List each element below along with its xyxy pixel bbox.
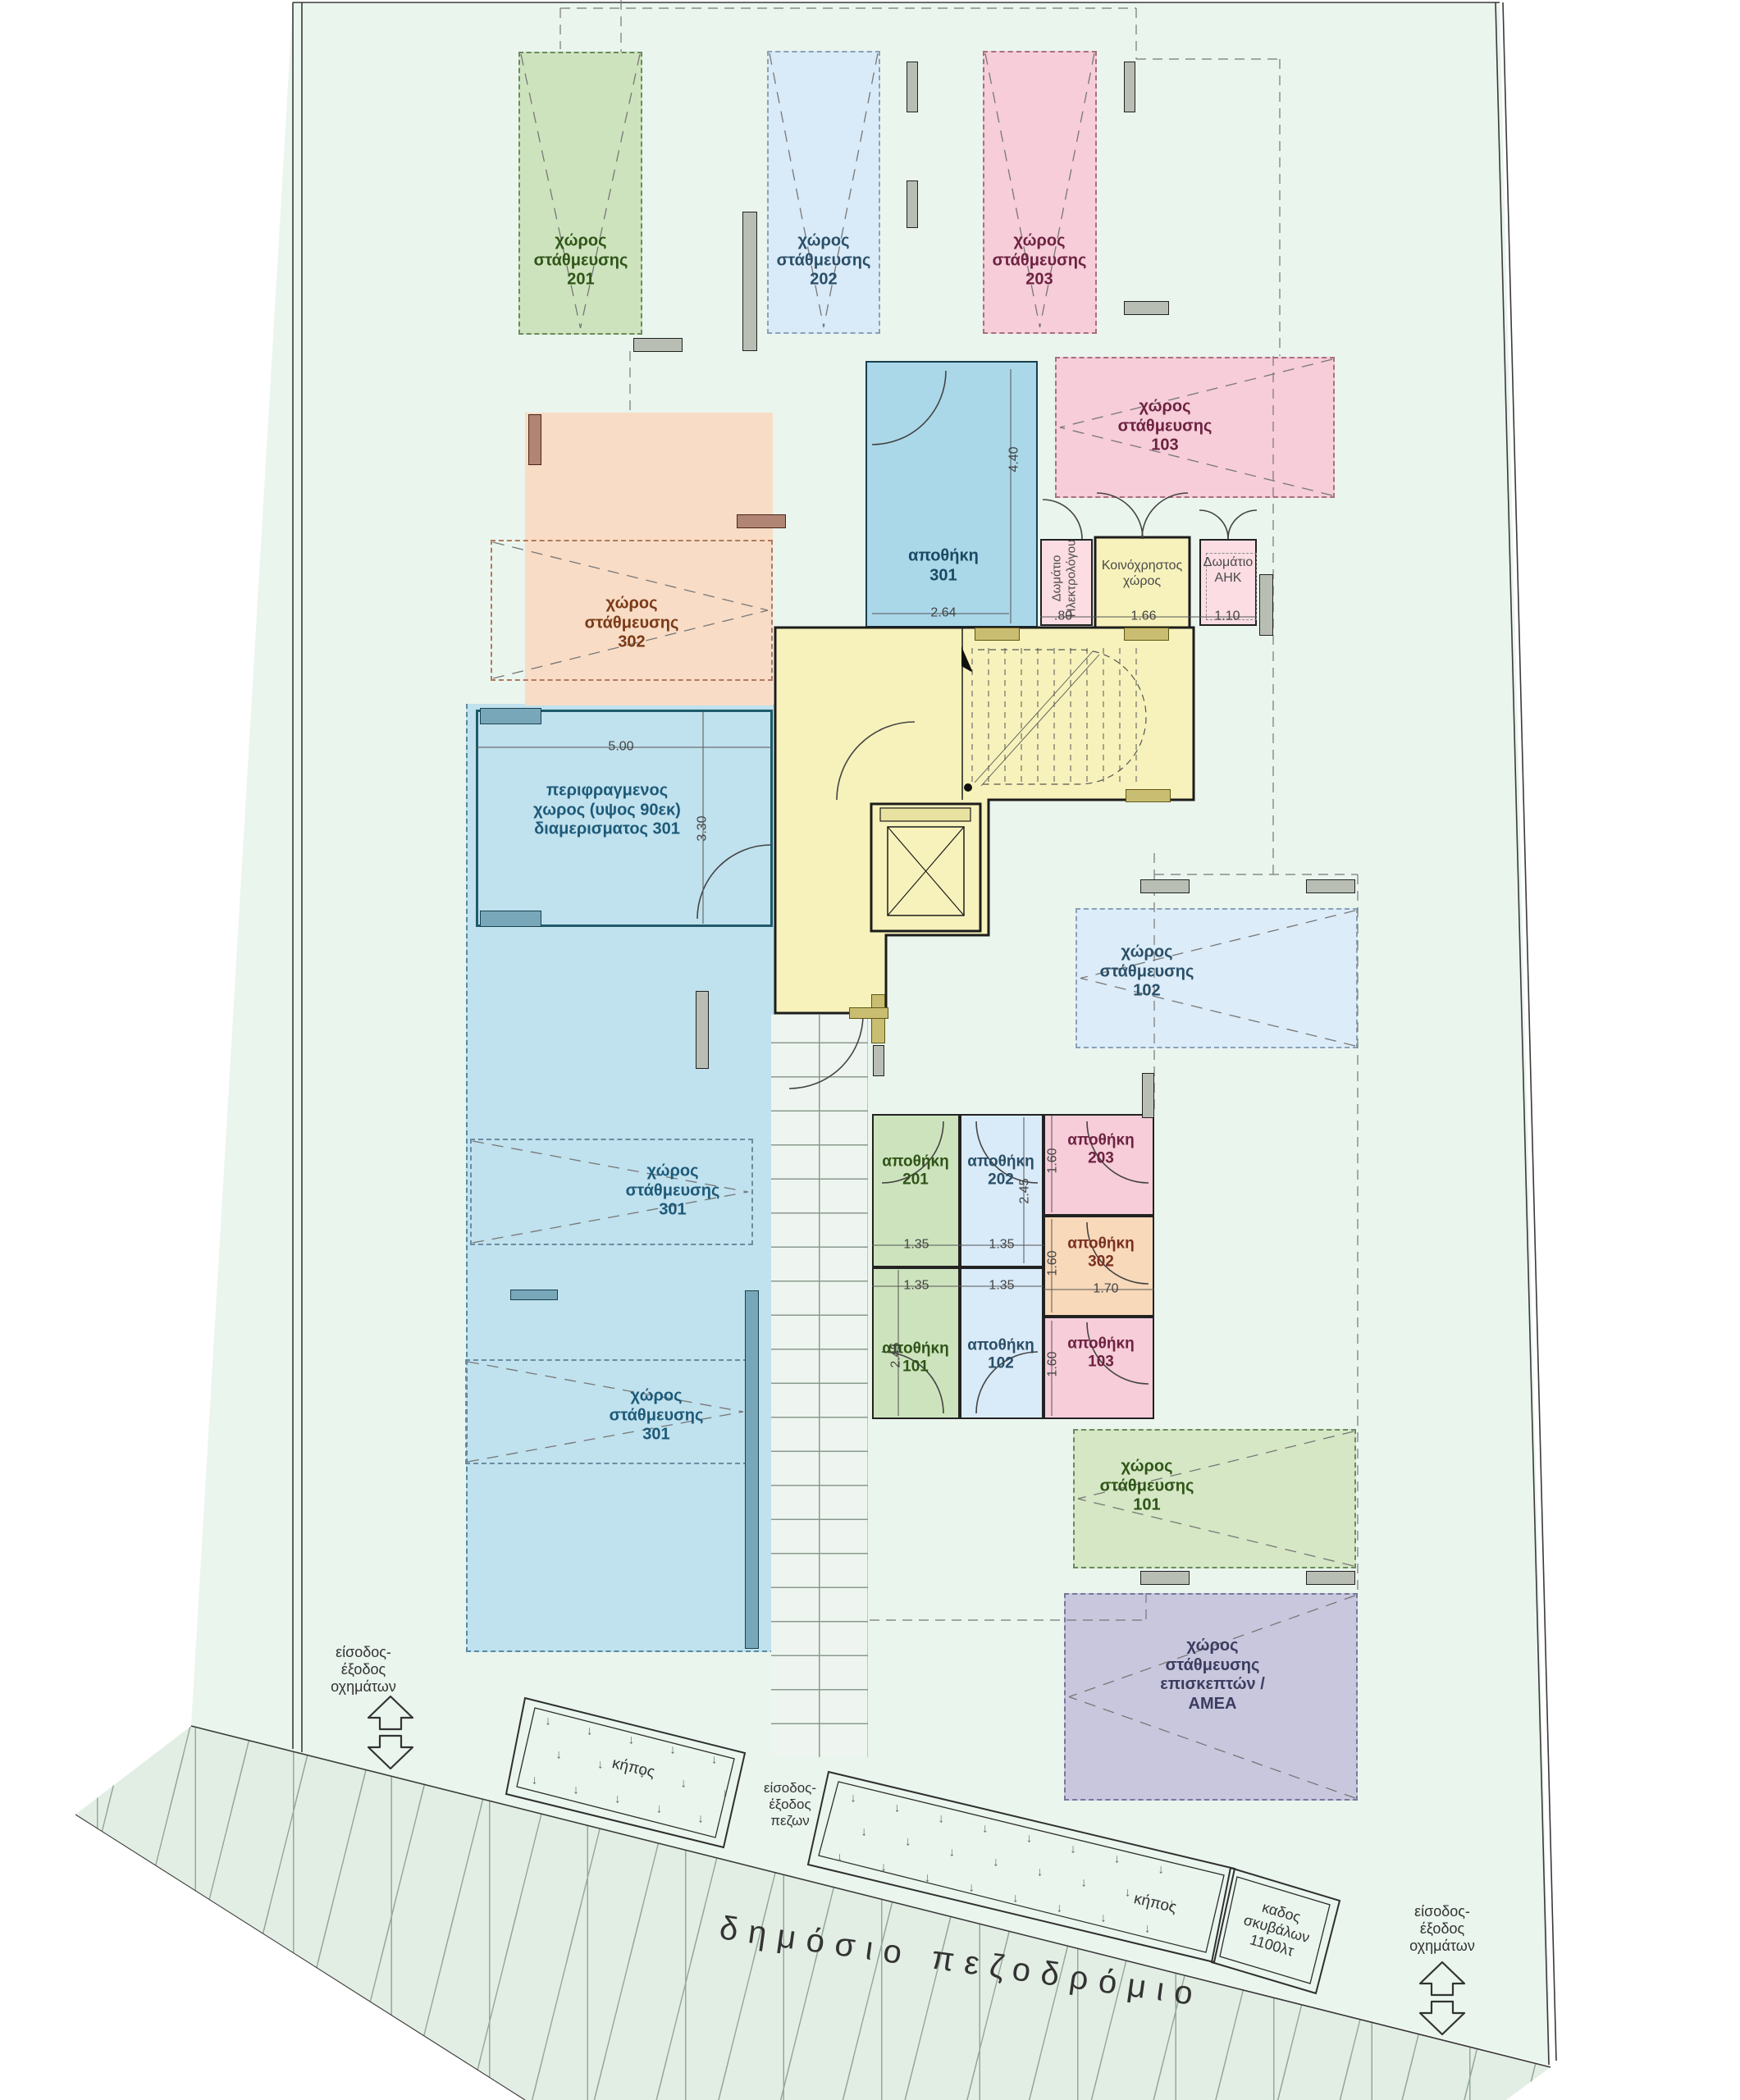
grass-mark: ↓ (1158, 1862, 1164, 1876)
structural-column (1126, 789, 1171, 802)
parking-label-203-line: στάθμευσης (993, 251, 1087, 271)
vehicle-entry-left: είσοδος-έξοδοςοχημάτων (331, 1644, 396, 1696)
structural-column (1306, 1571, 1355, 1585)
dimension-0: 4.40 (1007, 446, 1023, 472)
structural-column (871, 994, 885, 1043)
dimension-12: 1.60 (1046, 1148, 1062, 1173)
vehicle-entry-left-line: έξοδος (331, 1661, 396, 1678)
grass-mark: ↓ (597, 1757, 604, 1771)
grass-mark: ↓ (925, 1870, 931, 1884)
parking-label-301b-line: χώρος (610, 1387, 704, 1407)
parking-label-203-line: 203 (993, 271, 1087, 290)
parking-label-302-line: 302 (585, 633, 679, 653)
parking-label-103: χώροςστάθμευσης103 (1118, 398, 1213, 456)
grass-mark: ↓ (1100, 1911, 1107, 1925)
structural-column (528, 414, 541, 465)
grass-mark: ↓ (587, 1723, 593, 1737)
site-plan: χώροςστάθμευσης201χώροςστάθμευσης202χώρο… (0, 0, 1740, 2100)
grass-mark: ↓ (880, 1860, 887, 1874)
dimension-11-line: 1.70 (1093, 1282, 1118, 1298)
dimension-16: 2.45 (889, 1342, 905, 1367)
structural-column (907, 62, 918, 112)
dimension-5-line: 5.00 (608, 740, 633, 756)
parking-label-301b-line: στάθμευσης (610, 1406, 704, 1426)
structural-column (745, 1290, 759, 1649)
storage-label-202-line: αποθήκη (967, 1153, 1034, 1171)
storage-label-201-line: αποθήκη (882, 1153, 948, 1171)
grass-mark: ↓ (949, 1845, 956, 1859)
grass-mark: ↓ (697, 1811, 704, 1825)
room-label-room-electrician-line: Ηλεκτρολόγου (1064, 540, 1079, 618)
parking-label-102-line: 102 (1100, 982, 1194, 1002)
pedestrian-entry: είσοδος-έξοδοςπεζων (764, 1780, 816, 1829)
room-label-apothiki-301-line: αποθήκη (908, 546, 979, 566)
structural-column (633, 338, 683, 352)
parking-label-AMEA-line: επισκεπτών / (1160, 1675, 1265, 1695)
storage-label-102-line: 102 (967, 1355, 1034, 1373)
grass-mark: ↓ (545, 1714, 551, 1728)
structural-column (1306, 879, 1355, 893)
parking-label-202-line: χώρος (777, 232, 871, 252)
storage-label-103: αποθήκη103 (1067, 1335, 1134, 1372)
storage-label-102: αποθήκη102 (967, 1337, 1034, 1374)
grass-mark: ↓ (711, 1752, 718, 1766)
vehicle-entry-left-line: οχημάτων (331, 1679, 396, 1696)
grass-mark: ↓ (968, 1881, 975, 1895)
grass-mark: ↓ (555, 1748, 562, 1762)
parking-label-302-line: στάθμευσης (585, 614, 679, 633)
dimension-2-line: .80 (1054, 609, 1072, 625)
storage-label-203-line: 203 (1067, 1150, 1134, 1168)
parking-label-203: χώροςστάθμευσης203 (993, 232, 1087, 290)
dimension-1: 2.64 (930, 606, 956, 622)
room-label-room-electrician: ΔωμάτιοΗλεκτρολόγου (1049, 540, 1078, 618)
grass-mark: ↓ (982, 1822, 989, 1836)
parking-space-203 (983, 51, 1097, 334)
structural-column (696, 991, 709, 1069)
dimension-4-line: 1.10 (1214, 609, 1240, 625)
structural-column (1124, 628, 1169, 641)
grass-mark: ↓ (905, 1835, 911, 1849)
grass-mark: ↓ (938, 1811, 944, 1825)
storage-label-302-line: 302 (1067, 1253, 1134, 1271)
dimension-11: 1.70 (1093, 1282, 1118, 1298)
structural-column (1142, 1073, 1154, 1118)
dimension-15: 2.45 (1018, 1178, 1034, 1203)
parking-label-202-line: στάθμευσης (777, 251, 871, 271)
grass-mark: ↓ (656, 1802, 663, 1816)
paved-walkway (771, 1015, 868, 1757)
room-label-room-electrician-line: Δωμάτιο (1049, 540, 1064, 618)
dimension-8-line: 1.35 (989, 1238, 1014, 1253)
dimension-5: 5.00 (608, 740, 633, 756)
dimension-13-line: 1.60 (1046, 1250, 1062, 1276)
storage-label-203-line: αποθήκη (1067, 1132, 1134, 1150)
parking-label-301a-line: στάθμευσης (626, 1181, 720, 1201)
grass-mark: ↓ (1114, 1852, 1121, 1866)
grass-mark: ↓ (573, 1783, 579, 1796)
structural-column (1140, 1571, 1190, 1585)
dimension-6: 3.30 (696, 815, 711, 841)
grass-mark: ↓ (850, 1792, 856, 1806)
dimension-14: 1.60 (1046, 1351, 1062, 1376)
dimension-2: .80 (1054, 609, 1072, 625)
structural-column (737, 514, 786, 528)
structural-column (480, 708, 541, 724)
storage-label-102-line: αποθήκη (967, 1337, 1034, 1355)
grass-mark: ↓ (894, 1801, 901, 1815)
vehicle-entry-left-line: είσοδος- (331, 1644, 396, 1661)
dimension-7: 1.35 (903, 1238, 929, 1253)
pedestrian-entry-line: πεζων (764, 1813, 816, 1829)
grass-mark: ↓ (1125, 1886, 1131, 1900)
parking-label-103-line: στάθμευσης (1118, 417, 1213, 436)
dimension-7-line: 1.35 (903, 1238, 929, 1253)
grass-mark: ↓ (837, 1851, 843, 1865)
parking-label-202: χώροςστάθμευσης202 (777, 232, 871, 290)
storage-label-203: αποθήκη203 (1067, 1132, 1134, 1169)
structural-column (849, 1007, 888, 1019)
structural-column (742, 212, 757, 351)
parking-label-201-line: στάθμευσης (534, 251, 628, 271)
structural-column (1124, 301, 1169, 315)
parking-label-302: χώροςστάθμευσης302 (585, 595, 679, 653)
parking-label-101: χώροςστάθμευσης101 (1100, 1458, 1194, 1516)
dimension-15-line: 2.45 (1018, 1178, 1034, 1203)
parking-label-201-line: 201 (534, 271, 628, 290)
dimension-12-line: 1.60 (1046, 1148, 1062, 1173)
parking-label-103-line: 103 (1118, 436, 1213, 456)
dimension-14-line: 1.60 (1046, 1351, 1062, 1376)
grass-mark: ↓ (722, 1786, 728, 1800)
parking-label-301b-line: 301 (610, 1426, 704, 1445)
pedestrian-entry-line: είσοδος- (764, 1780, 816, 1796)
parking-label-302-line: χώρος (585, 595, 679, 614)
dimension-13: 1.60 (1046, 1250, 1062, 1276)
parking-label-102-line: στάθμευσης (1100, 962, 1194, 982)
grass-mark: ↓ (1080, 1875, 1087, 1889)
dimension-3: 1.66 (1130, 609, 1156, 625)
grass-mark: ↓ (614, 1792, 621, 1806)
storage-label-201: αποθήκη201 (882, 1153, 948, 1190)
grass-mark: ↓ (1026, 1832, 1033, 1846)
grass-mark: ↓ (1057, 1901, 1063, 1915)
parking-label-202-line: 202 (777, 271, 871, 290)
room-label-room-ahk: ΔωμάτιοΑΗΚ (1203, 555, 1253, 587)
fenced-area-label-line: χωρος (υψος 90εκ) (533, 801, 681, 820)
room-label-room-common: Κοινόχρηστοςχώρος (1102, 559, 1182, 590)
parking-label-101-line: χώρος (1100, 1458, 1194, 1477)
dimension-10: 1.35 (989, 1279, 1014, 1294)
parking-space-301b (465, 1359, 748, 1464)
parking-label-203-line: χώρος (993, 232, 1087, 252)
storage-label-103-line: 103 (1067, 1354, 1134, 1372)
storage-label-201-line: 201 (882, 1171, 948, 1189)
dimension-6-line: 3.30 (696, 815, 711, 841)
grass-mark: ↓ (993, 1856, 999, 1869)
fenced-area-label-line: διαμερισματος 301 (533, 820, 681, 840)
parking-label-301a-line: χώρος (626, 1162, 720, 1182)
parking-label-102-line: χώρος (1100, 943, 1194, 963)
parking-label-301b: χώροςστάθμευσης301 (610, 1387, 704, 1445)
grass-mark: ↓ (628, 1733, 635, 1747)
room-apothiki-301 (865, 361, 1038, 628)
parking-space-201 (518, 52, 642, 335)
dimension-9-line: 1.35 (903, 1279, 929, 1294)
parking-label-301a: χώροςστάθμευσης301 (626, 1162, 720, 1221)
grass-mark: ↓ (532, 1774, 538, 1787)
dimension-9: 1.35 (903, 1279, 929, 1294)
storage-label-103-line: αποθήκη (1067, 1335, 1134, 1354)
structural-column (1124, 62, 1135, 112)
parking-label-AMEA-line: στάθμευσης (1160, 1655, 1265, 1675)
vehicle-entry-right: είσοδος-έξοδοςοχημάτων (1409, 1903, 1475, 1956)
grass-mark: ↓ (1144, 1921, 1151, 1935)
dimension-10-line: 1.35 (989, 1279, 1014, 1294)
pedestrian-entry-line: έξοδος (764, 1796, 816, 1813)
dimension-0-line: 4.40 (1007, 446, 1023, 472)
room-label-room-common-line: Κοινόχρηστος (1102, 559, 1182, 574)
grass-mark: ↓ (1070, 1842, 1076, 1856)
dimension-1-line: 2.64 (930, 606, 956, 622)
parking-label-103-line: χώρος (1118, 398, 1213, 418)
vehicle-entry-right-line: έξοδος (1409, 1920, 1475, 1938)
structural-column (480, 911, 541, 927)
parking-label-101-line: στάθμευσης (1100, 1477, 1194, 1496)
vehicle-entry-right-line: οχημάτων (1409, 1938, 1475, 1956)
grass-mark: ↓ (669, 1743, 676, 1757)
structural-column (873, 1045, 884, 1076)
fenced-area-label: περιφραγμενοςχωρος (υψος 90εκ)διαμερισμα… (533, 782, 681, 840)
room-label-apothiki-301: αποθήκη301 (908, 546, 979, 585)
room-label-room-common-line: χώρος (1102, 574, 1182, 590)
structural-column (1259, 574, 1273, 636)
parking-space-202 (767, 51, 880, 334)
dimension-3-line: 1.66 (1130, 609, 1156, 625)
dimension-16-line: 2.45 (889, 1342, 905, 1367)
grass-mark: ↓ (1037, 1865, 1044, 1879)
storage-label-302: αποθήκη302 (1067, 1235, 1134, 1272)
vehicle-entry-right-line: είσοδος- (1409, 1903, 1475, 1920)
grass-mark: ↓ (680, 1777, 687, 1791)
grass-mark: ↓ (861, 1825, 867, 1839)
room-label-room-ahk-line: ΑΗΚ (1203, 571, 1253, 587)
structural-column (510, 1290, 558, 1300)
structural-column (1140, 879, 1190, 893)
room-label-apothiki-301-line: 301 (908, 566, 979, 586)
dimension-8: 1.35 (989, 1238, 1014, 1253)
parking-label-301a-line: 301 (626, 1201, 720, 1221)
parking-label-101-line: 101 (1100, 1496, 1194, 1516)
parking-label-102: χώροςστάθμευσης102 (1100, 943, 1194, 1002)
parking-label-AMEA: χώροςστάθμευσηςεπισκεπτών /ΑΜΕΑ (1160, 1637, 1265, 1714)
grass-mark: ↓ (1012, 1891, 1019, 1905)
parking-label-AMEA-line: ΑΜΕΑ (1160, 1695, 1265, 1714)
fenced-area-label-line: περιφραγμενος (533, 782, 681, 801)
parking-label-AMEA-line: χώρος (1160, 1637, 1265, 1656)
parking-label-201-line: χώρος (534, 232, 628, 252)
parking-label-201: χώροςστάθμευσης201 (534, 232, 628, 290)
room-label-room-ahk-line: Δωμάτιο (1203, 555, 1253, 571)
structural-column (975, 628, 1020, 641)
storage-label-302-line: αποθήκη (1067, 1235, 1134, 1253)
structural-column (907, 180, 918, 228)
dimension-4: 1.10 (1214, 609, 1240, 625)
